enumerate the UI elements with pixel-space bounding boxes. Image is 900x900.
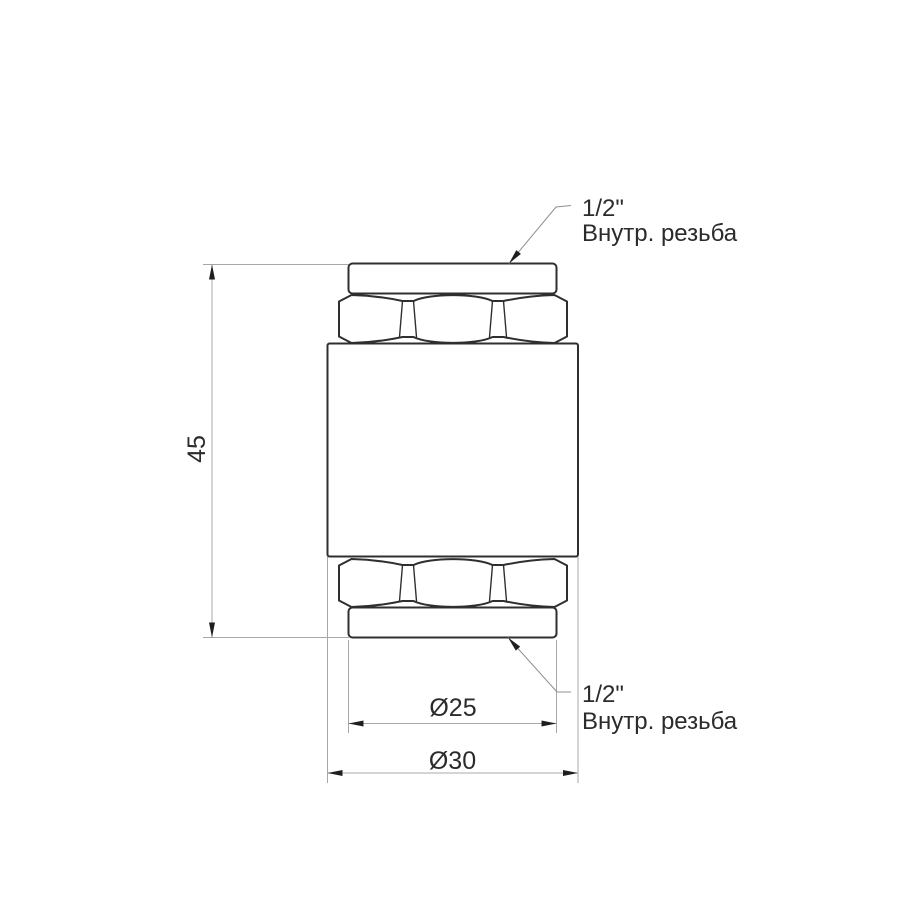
top-thread-callout: 1/2" Внутр. резьба — [509, 195, 738, 264]
inner-diameter-label: Ø25 — [429, 694, 476, 722]
hex-facet-edge — [490, 301, 493, 337]
bottom-cap — [349, 608, 557, 638]
hex-facet-edge — [504, 301, 507, 337]
bottom-hex-nut — [339, 559, 567, 607]
arrowhead-down-icon — [209, 623, 215, 638]
bottom-thread-type-label: Внутр. резьба — [582, 708, 738, 735]
technical-drawing-page: 45 Ø25 Ø30 — [0, 0, 900, 900]
outer-diameter-dimension: Ø30 — [328, 557, 579, 783]
outer-diameter-label: Ø30 — [429, 747, 476, 775]
arrowhead-right-icon — [542, 721, 557, 727]
inner-diameter-dimension: Ø25 — [349, 640, 557, 733]
arrowhead-left-icon — [328, 770, 343, 776]
valve-technical-drawing: 45 Ø25 Ø30 — [0, 0, 900, 900]
height-dimension: 45 — [183, 265, 349, 638]
hex-facet-edge — [400, 301, 403, 337]
bottom-thread-callout: 1/2" Внутр. резьба — [508, 638, 738, 736]
height-dimension-label: 45 — [183, 435, 211, 463]
top-cap — [349, 264, 557, 294]
hex-facet-edge — [414, 301, 417, 337]
valve-outline — [328, 264, 579, 638]
top-thread-size-label: 1/2" — [582, 195, 624, 222]
top-thread-type-label: Внутр. резьба — [582, 220, 738, 247]
top-hex-nut — [339, 295, 567, 343]
arrowhead-up-icon — [209, 265, 215, 280]
arrowhead-right-icon — [563, 770, 578, 776]
arrowhead-left-icon — [349, 721, 364, 727]
bottom-thread-size-label: 1/2" — [582, 681, 624, 708]
hex-outline — [339, 295, 567, 343]
valve-body — [328, 344, 579, 557]
